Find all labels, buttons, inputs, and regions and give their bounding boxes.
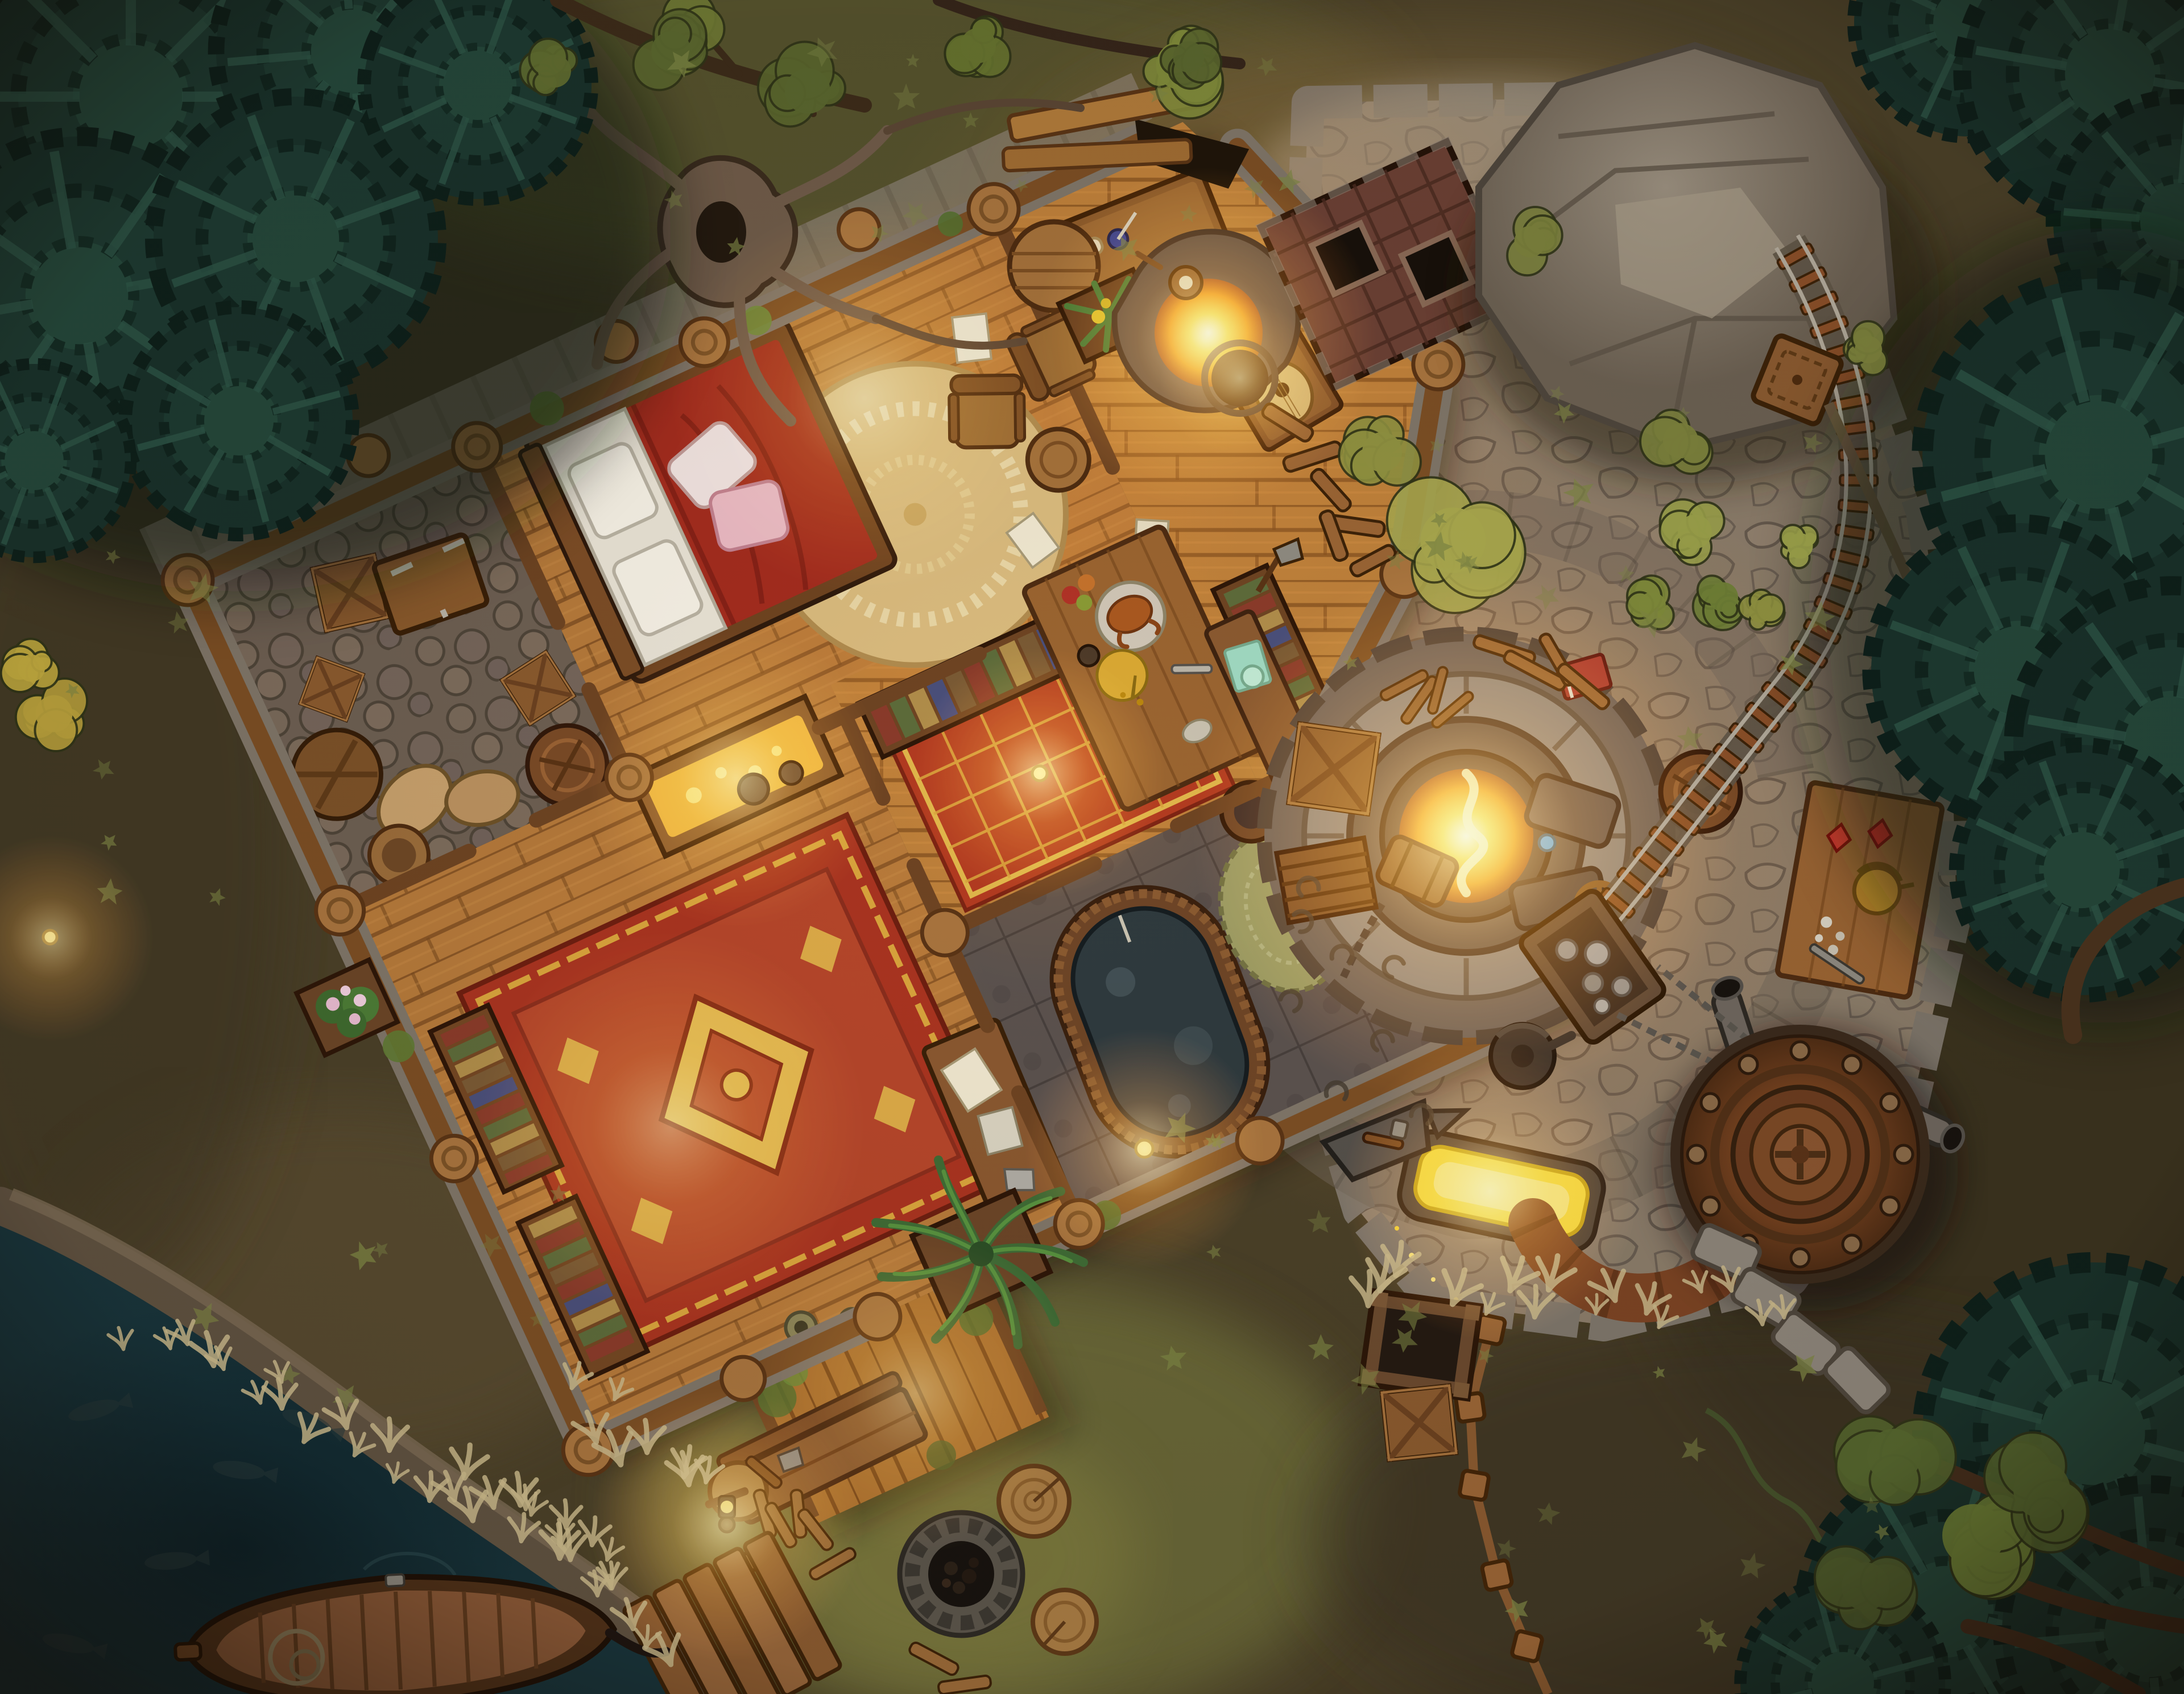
- battle-map-canvas: [0, 0, 2184, 1694]
- vignette: [0, 0, 2184, 1694]
